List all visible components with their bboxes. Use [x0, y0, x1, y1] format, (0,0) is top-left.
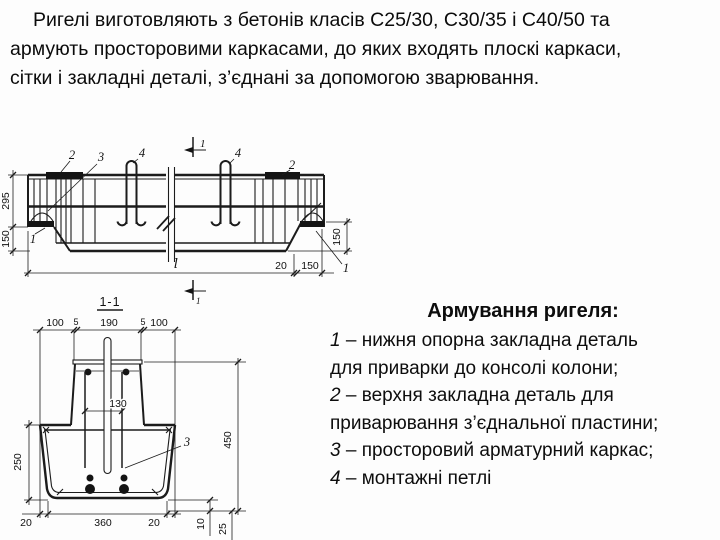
section-cut-marks: 1 1	[184, 137, 206, 306]
dim-20-bottom-left: 20	[20, 517, 32, 529]
dim-5-left: 5	[73, 317, 78, 327]
legend-item-1b: для приварки до консолі колони;	[330, 355, 716, 383]
intro-paragraph: Ригелі виготовляють з бетонів класів С25…	[10, 6, 712, 93]
dim-450: 450	[222, 431, 234, 449]
dim-130: 130	[109, 398, 127, 410]
intro-line: Ригелі виготовляють з бетонів класів С25…	[10, 6, 712, 35]
slide: Ригелі виготовляють з бетонів класів С25…	[0, 0, 720, 540]
cross-section-outline	[40, 338, 175, 499]
legend-item-1: 1 – нижня опорна закладна деталь	[330, 327, 716, 355]
callout-cage-section: 3	[183, 435, 190, 449]
cross-section-bottom-dimensions: 20 360 20	[20, 425, 181, 529]
dim-150-left: 150	[0, 230, 12, 248]
callout-loop-right: 4	[235, 146, 241, 160]
dim-100-right: 100	[150, 317, 168, 329]
dim-20-bottom-right: 20	[148, 517, 160, 529]
intro-line: сітки і закладні деталі, з’єднані за доп…	[10, 64, 712, 93]
dim-190: 190	[100, 317, 118, 329]
legend-title: Армування ригеля:	[330, 299, 716, 323]
legend-item-4: 4 – монтажні петлі	[330, 465, 716, 493]
stirrup-bars	[34, 179, 317, 243]
section-cut-label-bottom: 1	[196, 296, 201, 306]
dim-150-end-height: 150	[331, 228, 343, 246]
dim-5-right: 5	[140, 317, 145, 327]
dim-150-bearing: 150	[301, 260, 319, 272]
legend-item-2b: приварювання з’єднальної пластини;	[330, 410, 716, 438]
dim-20-end: 20	[275, 260, 287, 272]
callout-cage: 3	[97, 150, 104, 164]
callout-loop-left: 4	[139, 146, 145, 160]
long-section-callouts: 2 3 4 4 2 1 1	[30, 146, 349, 275]
embedded-plates	[28, 172, 324, 227]
legend-item-3: 3 – просторовий арматурний каркас;	[330, 437, 716, 465]
dim-length-l: l	[174, 257, 178, 272]
callout-top-plate-left: 2	[69, 148, 75, 162]
cross-section-title: 1-1	[97, 295, 123, 310]
callout-top-plate-right: 2	[289, 158, 295, 172]
intro-line: армують просторовими каркасами, до яких …	[10, 35, 712, 64]
dim-100-left: 100	[46, 317, 64, 329]
section-cut-label-top: 1	[200, 138, 206, 150]
lifting-loops	[118, 161, 240, 225]
callout-bottom-plate-right: 1	[343, 261, 349, 275]
dim-25: 25	[217, 523, 229, 535]
technical-drawing: 295 150 l 20 150 150 2 3 4 4	[0, 128, 360, 540]
cross-section-callout: 3	[125, 435, 190, 468]
cross-section-title-text: 1-1	[99, 295, 120, 309]
dim-250: 250	[12, 453, 24, 471]
callout-bottom-plate-left: 1	[30, 232, 36, 246]
beam-longitudinal-outline	[28, 175, 324, 251]
legend: Армування ригеля: 1 – нижня опорна закла…	[330, 299, 716, 492]
dim-360: 360	[94, 517, 112, 529]
dim-10: 10	[195, 518, 207, 530]
legend-item-2: 2 – верхня закладна деталь для	[330, 382, 716, 410]
dim-295: 295	[0, 192, 12, 210]
